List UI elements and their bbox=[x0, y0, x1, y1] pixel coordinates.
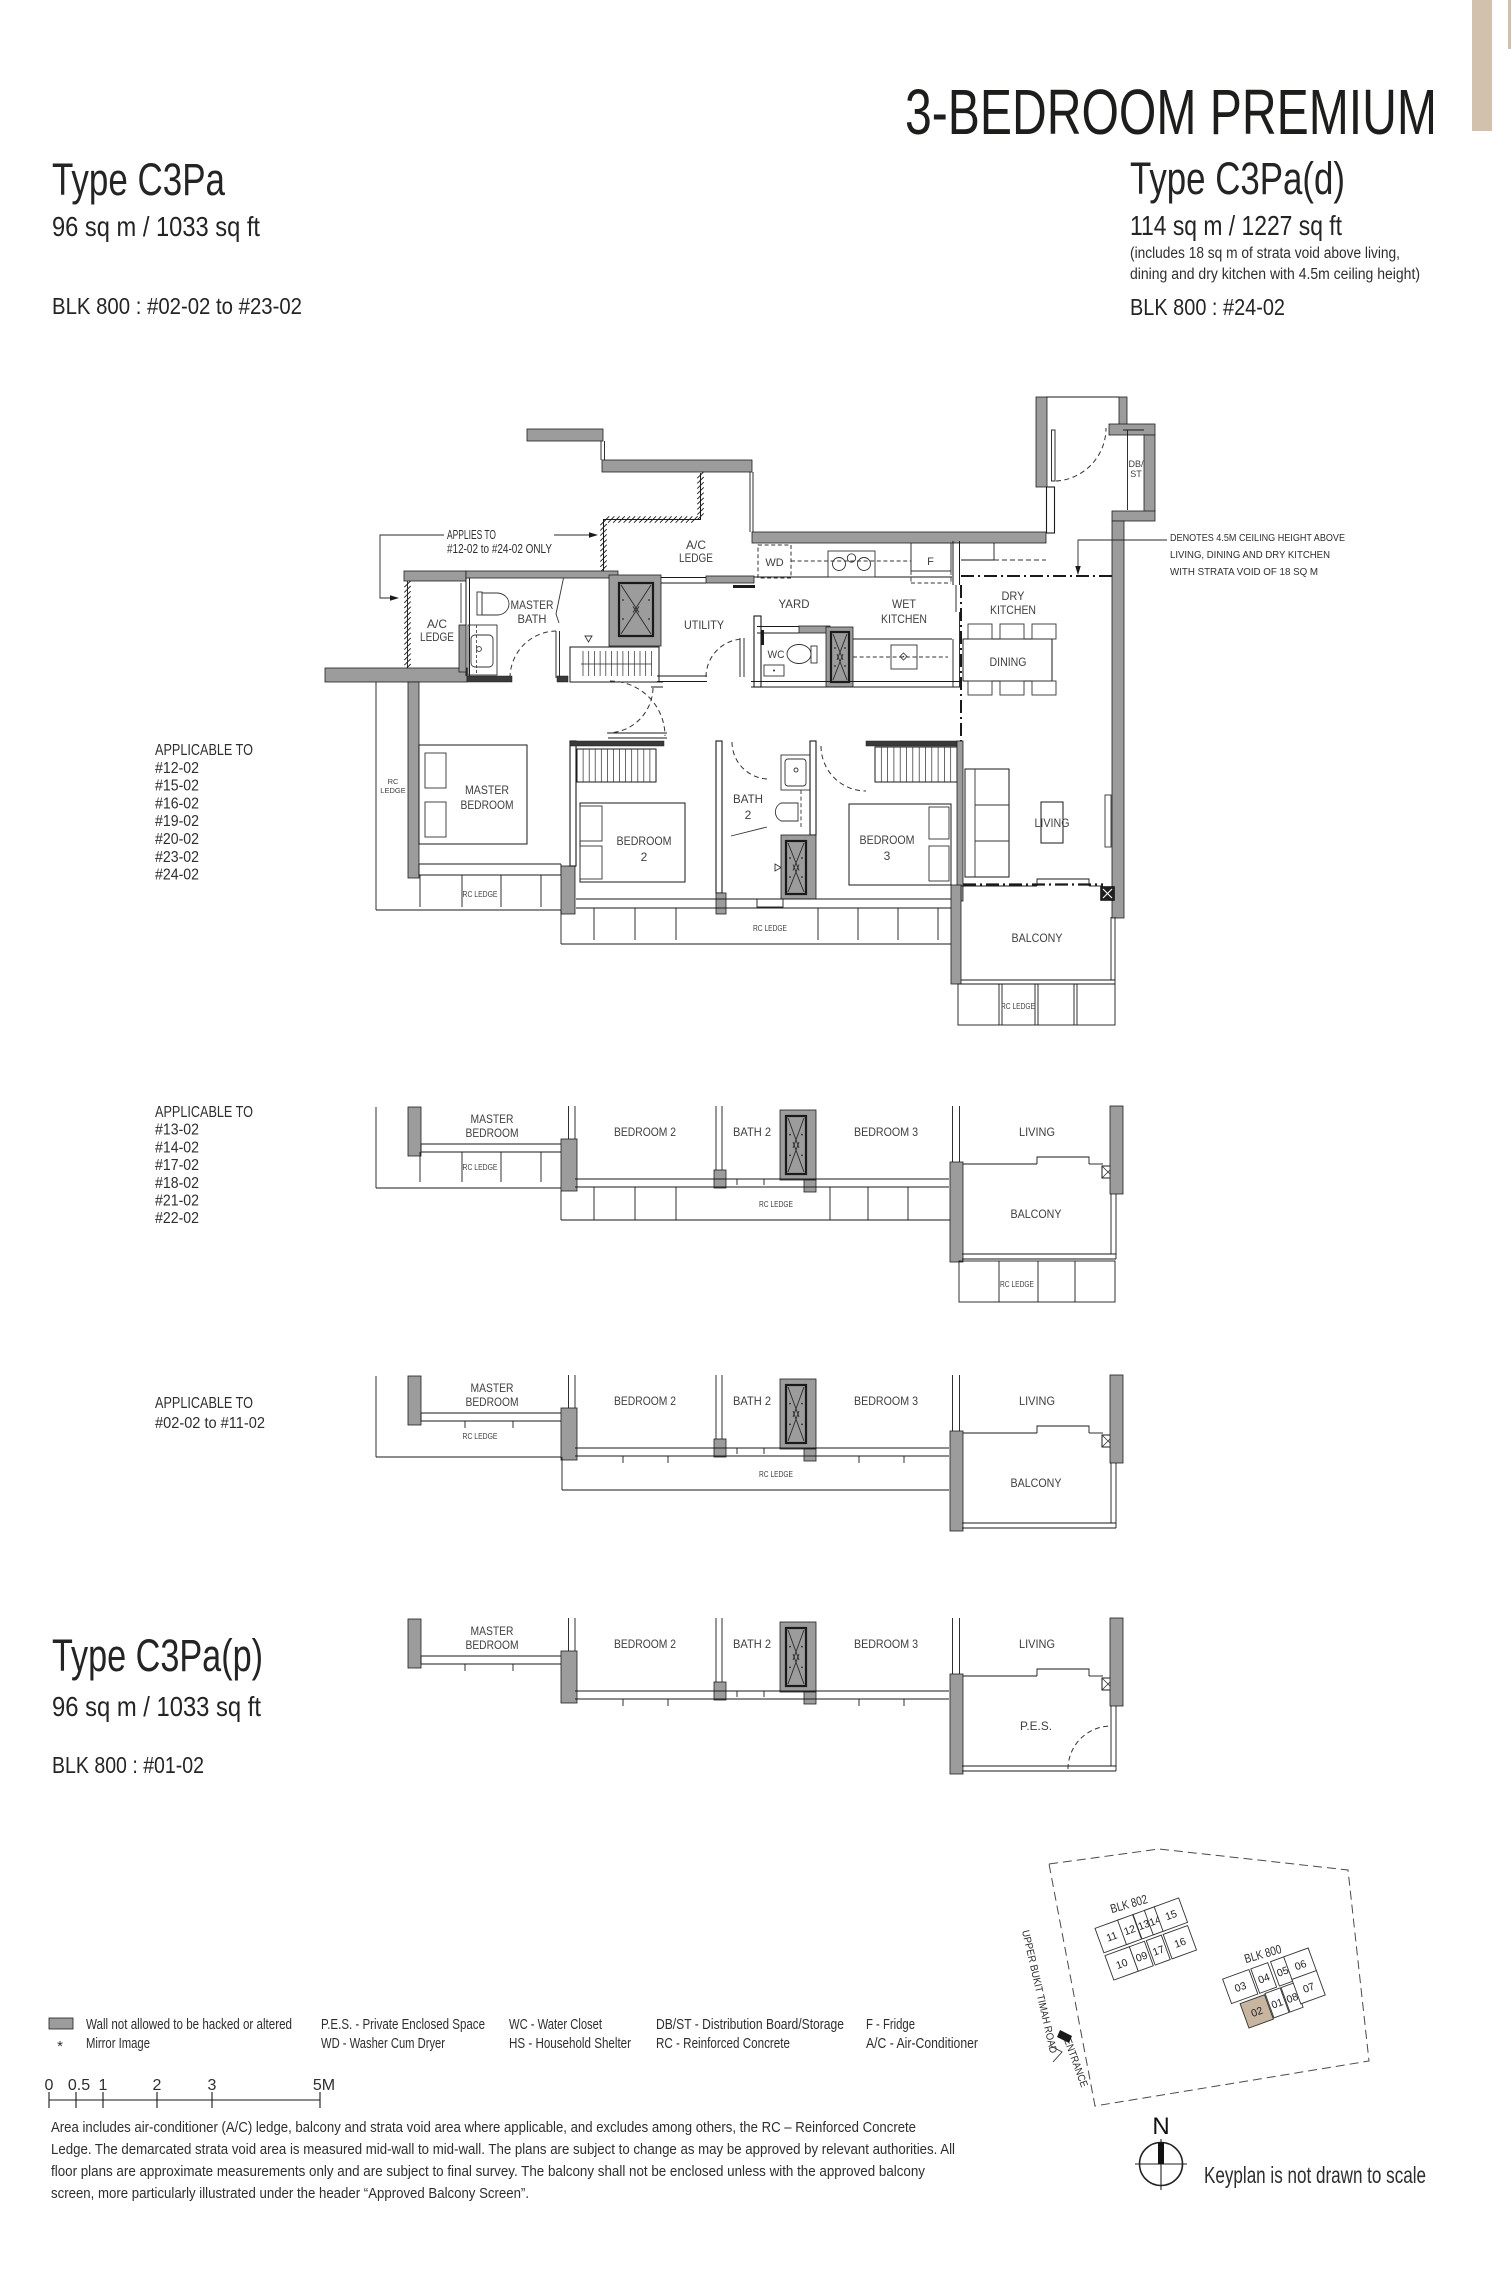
svg-text:A/C: A/C bbox=[427, 617, 447, 631]
svg-text:BEDROOM 2: BEDROOM 2 bbox=[614, 1125, 676, 1139]
svg-text:MASTER: MASTER bbox=[471, 1624, 514, 1638]
svg-text:BATH 2: BATH 2 bbox=[733, 1637, 771, 1651]
svg-text:Keyplan is not drawn to scale: Keyplan is not drawn to scale bbox=[1204, 2162, 1426, 2188]
svg-text:96 sq m / 1033 sq ft: 96 sq m / 1033 sq ft bbox=[52, 211, 260, 242]
svg-text:dining and dry kitchen with 4.: dining and dry kitchen with 4.5m ceiling… bbox=[1130, 266, 1420, 283]
svg-text:KITCHEN: KITCHEN bbox=[881, 612, 927, 626]
svg-text:Type C3Pa(d): Type C3Pa(d) bbox=[1130, 153, 1345, 204]
svg-text:MASTER: MASTER bbox=[465, 783, 509, 797]
svg-text:5M: 5M bbox=[313, 2077, 335, 2094]
svg-text:#18-02: #18-02 bbox=[155, 1175, 199, 1192]
svg-text:DB/: DB/ bbox=[1128, 459, 1144, 469]
svg-text:*: * bbox=[57, 2038, 63, 2055]
svg-text:#21-02: #21-02 bbox=[155, 1193, 199, 1210]
svg-text:WITH STRATA VOID OF 18 SQ M: WITH STRATA VOID OF 18 SQ M bbox=[1170, 566, 1318, 578]
svg-text:BLK 800 : #24-02: BLK 800 : #24-02 bbox=[1130, 294, 1285, 320]
svg-text:#17-02: #17-02 bbox=[155, 1157, 199, 1174]
svg-text:2: 2 bbox=[641, 850, 648, 864]
svg-text:#14-02: #14-02 bbox=[155, 1139, 199, 1156]
svg-text:APPLICABLE TO: APPLICABLE TO bbox=[155, 1395, 253, 1412]
svg-text:RC LEDGE: RC LEDGE bbox=[463, 1163, 498, 1172]
svg-text:Ledge. The demarcated strata v: Ledge. The demarcated strata void area i… bbox=[51, 2141, 955, 2158]
svg-text:P.E.S. - Private Enclosed Spac: P.E.S. - Private Enclosed Space bbox=[321, 2016, 485, 2033]
svg-text:RC LEDGE: RC LEDGE bbox=[1001, 1002, 1035, 1011]
svg-text:#24-02: #24-02 bbox=[155, 867, 199, 884]
svg-text:BEDROOM: BEDROOM bbox=[461, 798, 514, 812]
svg-text:BEDROOM 2: BEDROOM 2 bbox=[614, 1394, 676, 1408]
svg-text:F - Fridge: F - Fridge bbox=[866, 2016, 915, 2033]
svg-text:LIVING, DINING AND DRY KITCHEN: LIVING, DINING AND DRY KITCHEN bbox=[1170, 549, 1330, 561]
svg-text:BEDROOM: BEDROOM bbox=[466, 1395, 519, 1409]
svg-text:#22-02: #22-02 bbox=[155, 1210, 199, 1227]
svg-text:LIVING: LIVING bbox=[1019, 1394, 1055, 1408]
svg-text:BATH 2: BATH 2 bbox=[733, 1394, 771, 1408]
svg-text:BEDROOM 3: BEDROOM 3 bbox=[854, 1125, 918, 1139]
svg-text:P.E.S.: P.E.S. bbox=[1020, 1719, 1052, 1733]
svg-text:2: 2 bbox=[745, 808, 752, 822]
svg-text:#12-02 to #24-02 ONLY: #12-02 to #24-02 ONLY bbox=[447, 541, 552, 556]
svg-text:3: 3 bbox=[884, 849, 891, 863]
svg-text:UPPER BUKIT TIMAH ROAD: UPPER BUKIT TIMAH ROAD bbox=[1019, 1929, 1059, 2055]
svg-text:LIVING: LIVING bbox=[1019, 1125, 1055, 1139]
svg-text:(includes 18 sq m of strata vo: (includes 18 sq m of strata void above l… bbox=[1130, 245, 1400, 262]
svg-text:F: F bbox=[927, 556, 934, 568]
svg-text:MASTER: MASTER bbox=[471, 1112, 514, 1126]
svg-text:WC: WC bbox=[768, 649, 785, 661]
svg-text:YARD: YARD bbox=[779, 597, 810, 611]
svg-text:LIVING: LIVING bbox=[1035, 816, 1070, 830]
svg-text:BLK 800 : #01-02: BLK 800 : #01-02 bbox=[52, 1752, 204, 1778]
svg-text:MASTER: MASTER bbox=[471, 1381, 514, 1395]
svg-text:#12-02: #12-02 bbox=[155, 760, 199, 777]
svg-text:ENTRANCE: ENTRANCE bbox=[1061, 2037, 1090, 2089]
svg-text:BLK 800 : #02-02 to #23-02: BLK 800 : #02-02 to #23-02 bbox=[52, 293, 302, 319]
svg-text:114 sq m / 1227 sq ft: 114 sq m / 1227 sq ft bbox=[1130, 210, 1342, 241]
svg-text:BEDROOM 3: BEDROOM 3 bbox=[854, 1637, 918, 1651]
svg-text:BEDROOM: BEDROOM bbox=[617, 834, 672, 848]
svg-text:APPLICABLE TO: APPLICABLE TO bbox=[155, 742, 253, 759]
svg-text:BALCONY: BALCONY bbox=[1011, 1207, 1062, 1221]
svg-text:DRY: DRY bbox=[1002, 589, 1025, 603]
svg-text:N: N bbox=[1152, 2113, 1169, 2140]
svg-text:#13-02: #13-02 bbox=[155, 1122, 199, 1139]
svg-text:#02-02 to #11-02: #02-02 to #11-02 bbox=[155, 1415, 265, 1432]
svg-text:#23-02: #23-02 bbox=[155, 849, 199, 866]
svg-text:Mirror Image: Mirror Image bbox=[86, 2035, 150, 2052]
svg-text:MASTER: MASTER bbox=[511, 598, 554, 612]
svg-text:RC: RC bbox=[388, 777, 399, 786]
svg-text:RC LEDGE: RC LEDGE bbox=[463, 890, 498, 899]
svg-text:ST: ST bbox=[1130, 469, 1142, 479]
svg-text:RC LEDGE: RC LEDGE bbox=[759, 1200, 793, 1209]
svg-text:BEDROOM: BEDROOM bbox=[466, 1126, 519, 1140]
svg-text:RC LEDGE: RC LEDGE bbox=[753, 924, 787, 933]
svg-text:WC - Water Closet: WC - Water Closet bbox=[509, 2016, 603, 2033]
svg-text:DINING: DINING bbox=[990, 655, 1027, 669]
svg-text:BATH 2: BATH 2 bbox=[733, 1125, 771, 1139]
svg-text:BEDROOM: BEDROOM bbox=[860, 833, 915, 847]
svg-text:RC - Reinforced Concrete: RC - Reinforced Concrete bbox=[656, 2035, 790, 2052]
svg-text:HS - Household Shelter: HS - Household Shelter bbox=[509, 2035, 631, 2052]
svg-text:Wall not allowed to be hacked: Wall not allowed to be hacked or altered bbox=[86, 2016, 292, 2033]
svg-text:Type C3Pa(p): Type C3Pa(p) bbox=[52, 1630, 263, 1681]
svg-text:UTILITY: UTILITY bbox=[684, 618, 724, 632]
svg-text:0.5: 0.5 bbox=[68, 2077, 90, 2094]
svg-text:LEDGE: LEDGE bbox=[380, 786, 405, 795]
svg-text:DB/ST - Distribution Board/Sto: DB/ST - Distribution Board/Storage bbox=[656, 2016, 844, 2033]
svg-text:Type C3Pa: Type C3Pa bbox=[52, 154, 226, 205]
svg-text:KITCHEN: KITCHEN bbox=[990, 603, 1036, 617]
svg-text:#19-02: #19-02 bbox=[155, 813, 199, 830]
svg-text:RC LEDGE: RC LEDGE bbox=[463, 1432, 498, 1441]
svg-text:3-BEDROOM PREMIUM: 3-BEDROOM PREMIUM bbox=[905, 76, 1437, 148]
svg-text:APPLICABLE TO: APPLICABLE TO bbox=[155, 1104, 253, 1121]
svg-text:RC LEDGE: RC LEDGE bbox=[759, 1470, 793, 1479]
svg-text:A/C - Air-Conditioner: A/C - Air-Conditioner bbox=[866, 2035, 978, 2052]
svg-text:BEDROOM: BEDROOM bbox=[466, 1638, 519, 1652]
svg-text:WD: WD bbox=[765, 557, 783, 569]
svg-text:BATH: BATH bbox=[518, 612, 547, 626]
svg-text:LIVING: LIVING bbox=[1019, 1637, 1055, 1651]
svg-text:DENOTES 4.5M CEILING HEIGHT AB: DENOTES 4.5M CEILING HEIGHT ABOVE bbox=[1170, 532, 1345, 544]
svg-text:WET: WET bbox=[892, 597, 917, 611]
svg-text:APPLIES TO: APPLIES TO bbox=[447, 527, 496, 542]
svg-text:floor plans are approximate me: floor plans are approximate measurements… bbox=[51, 2163, 925, 2180]
svg-text:LEDGE: LEDGE bbox=[420, 630, 454, 644]
svg-text:RC LEDGE: RC LEDGE bbox=[1000, 1280, 1034, 1289]
svg-text:LEDGE: LEDGE bbox=[679, 551, 713, 565]
svg-text:#15-02: #15-02 bbox=[155, 778, 199, 795]
svg-text:BALCONY: BALCONY bbox=[1011, 1476, 1062, 1490]
svg-text:BEDROOM 2: BEDROOM 2 bbox=[614, 1637, 676, 1651]
svg-text:BATH: BATH bbox=[733, 792, 763, 806]
svg-text:3: 3 bbox=[208, 2077, 217, 2094]
svg-text:1: 1 bbox=[99, 2077, 108, 2094]
svg-text:A/C: A/C bbox=[686, 538, 706, 552]
svg-text:BEDROOM 3: BEDROOM 3 bbox=[854, 1394, 918, 1408]
svg-text:#20-02: #20-02 bbox=[155, 831, 199, 848]
svg-text:#16-02: #16-02 bbox=[155, 795, 199, 812]
svg-text:Area includes air-conditioner: Area includes air-conditioner (A/C) ledg… bbox=[51, 2119, 916, 2136]
svg-text:screen, more particularly illu: screen, more particularly illustrated un… bbox=[51, 2185, 529, 2202]
svg-text:BALCONY: BALCONY bbox=[1012, 931, 1063, 945]
svg-text:2: 2 bbox=[153, 2077, 162, 2094]
svg-text:96 sq m / 1033 sq ft: 96 sq m / 1033 sq ft bbox=[52, 1691, 261, 1722]
svg-text:WD - Washer Cum Dryer: WD - Washer Cum Dryer bbox=[321, 2035, 445, 2052]
svg-text:0: 0 bbox=[45, 2077, 54, 2094]
